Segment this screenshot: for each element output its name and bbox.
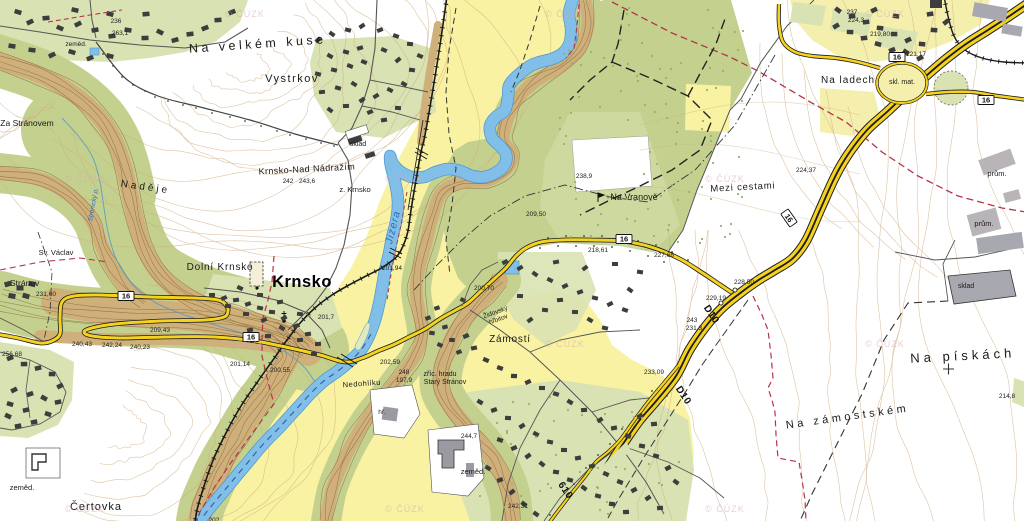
svg-text:© ČÚZK: © ČÚZK <box>705 504 745 514</box>
svg-text:© ČÚZK: © ČÚZK <box>705 174 745 184</box>
svg-text:263,1: 263,1 <box>112 30 129 37</box>
svg-text:214,8: 214,8 <box>999 393 1016 400</box>
svg-text:219,80: 219,80 <box>870 31 890 38</box>
svg-text:256,68: 256,68 <box>2 351 22 358</box>
svg-text:248: 248 <box>399 369 410 376</box>
svg-text:Na ladech: Na ladech <box>821 75 875 86</box>
svg-text:© ČÚZK: © ČÚZK <box>385 174 425 184</box>
svg-text:201,14: 201,14 <box>230 361 250 368</box>
svg-text:231,60: 231,60 <box>36 291 56 298</box>
svg-text:240,43: 240,43 <box>72 341 92 348</box>
svg-text:skl. mat.: skl. mat. <box>889 79 915 86</box>
svg-text:sklad: sklad <box>350 141 366 148</box>
svg-text:16: 16 <box>122 292 130 301</box>
svg-text:242: 242 <box>283 178 294 185</box>
svg-text:© ČÚZK: © ČÚZK <box>65 504 105 514</box>
svg-text:231,3: 231,3 <box>686 325 703 332</box>
svg-text:16: 16 <box>982 96 990 105</box>
svg-text:227,68: 227,68 <box>654 252 674 259</box>
svg-text:© ČÚZK: © ČÚZK <box>225 339 265 349</box>
svg-text:209,50: 209,50 <box>526 211 546 218</box>
svg-text:hř.: hř. <box>378 409 386 416</box>
svg-text:229,19: 229,19 <box>706 295 726 302</box>
svg-text:sklad: sklad <box>958 283 974 290</box>
svg-text:240,23: 240,23 <box>130 344 150 351</box>
svg-text:224,37: 224,37 <box>796 167 816 174</box>
svg-text:200,55: 200,55 <box>270 367 290 374</box>
svg-text:zříc. hradu: zříc. hradu <box>423 371 456 378</box>
svg-text:209,43: 209,43 <box>150 327 170 334</box>
svg-text:© ČÚZK: © ČÚZK <box>385 504 425 514</box>
svg-text:© ČÚZK: © ČÚZK <box>225 9 265 19</box>
svg-text:244,7: 244,7 <box>461 433 478 440</box>
svg-text:© ČÚZK: © ČÚZK <box>545 9 585 19</box>
svg-text:Vystrkov: Vystrkov <box>265 73 319 85</box>
svg-text:© ČÚZK: © ČÚZK <box>865 9 905 19</box>
svg-text:201,7: 201,7 <box>318 314 335 321</box>
svg-text:197,9: 197,9 <box>396 377 413 384</box>
svg-text:© ČÚZK: © ČÚZK <box>65 174 105 184</box>
svg-text:221,17: 221,17 <box>906 51 926 58</box>
svg-text:202,59: 202,59 <box>380 359 400 366</box>
svg-text:201,94: 201,94 <box>382 265 402 272</box>
svg-text:Za Stránovem: Za Stránovem <box>0 118 53 128</box>
svg-text:16: 16 <box>620 235 628 244</box>
svg-text:prům.: prům. <box>987 169 1006 178</box>
svg-text:z. Krnsko: z. Krnsko <box>339 185 370 194</box>
svg-text:243: 243 <box>687 317 698 324</box>
svg-text:zeměd.: zeměd. <box>461 467 486 476</box>
svg-text:Dolní Krnsko: Dolní Krnsko <box>187 262 254 273</box>
svg-text:zeměd.: zeměd. <box>65 41 87 48</box>
svg-text:Na Vranově: Na Vranově <box>610 192 657 202</box>
svg-text:Starý Stránov: Starý Stránov <box>424 379 467 386</box>
svg-text:242,31: 242,31 <box>508 503 528 510</box>
svg-text:242,24: 242,24 <box>102 342 122 349</box>
svg-text:Krnsko: Krnsko <box>272 273 332 291</box>
svg-text:236: 236 <box>111 18 122 25</box>
svg-text:238,9: 238,9 <box>576 173 593 180</box>
svg-text:243,6: 243,6 <box>299 178 316 185</box>
svg-text:237: 237 <box>847 9 858 16</box>
svg-text:224,3: 224,3 <box>848 17 865 24</box>
svg-text:228,50: 228,50 <box>734 279 754 286</box>
svg-text:200,70: 200,70 <box>474 285 494 292</box>
svg-text:© ČÚZK: © ČÚZK <box>865 339 905 349</box>
svg-text:218,61: 218,61 <box>588 247 608 254</box>
svg-text:Zámostí: Zámostí <box>489 334 531 345</box>
svg-text:Stránov: Stránov <box>10 278 40 288</box>
svg-text:202: 202 <box>209 517 220 521</box>
svg-text:© ČÚZK: © ČÚZK <box>545 339 585 349</box>
svg-text:prům.: prům. <box>974 219 993 228</box>
svg-text:233,09: 233,09 <box>644 369 664 376</box>
svg-text:zeměd.: zeměd. <box>10 483 35 492</box>
svg-text:16: 16 <box>893 53 901 62</box>
